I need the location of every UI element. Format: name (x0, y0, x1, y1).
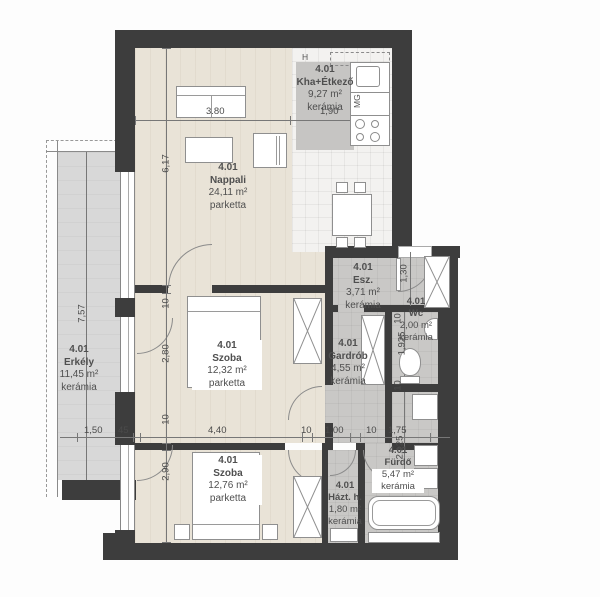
room-floor: kerámia (50, 382, 108, 395)
coffee-table (185, 137, 233, 163)
wall-hazt-top (356, 443, 365, 450)
tick (162, 48, 171, 49)
dim-wall-10: 10 (161, 284, 172, 324)
bed-pillow-line (188, 311, 260, 312)
dining-chair (354, 237, 366, 248)
fridge-label: H (302, 52, 308, 62)
room-number: 4.01 (318, 338, 378, 351)
dim-wall-10: 10 (366, 425, 377, 436)
dim-wc-height: 1,925 (397, 322, 408, 366)
room-number: 4.01 (194, 455, 262, 468)
window-nappali-balcony (120, 172, 135, 298)
room-label-szoba1: 4.01 Szoba 12,32 m² parketta (192, 340, 262, 390)
room-name: Kha+Étkező (290, 77, 360, 90)
room-area: 12,76 m² (194, 480, 262, 493)
dim-balcony-width: 1,50 (84, 425, 103, 436)
dim-balcony-height: 7,57 (77, 294, 88, 334)
bathtub-inner (372, 500, 436, 526)
dim-wall-10: 10 (161, 400, 172, 440)
dim-wall-45: 45 (118, 425, 129, 436)
room-floor: kerámia (318, 376, 378, 389)
tick (290, 116, 291, 125)
dim-furdo-height: 2,125 (395, 426, 406, 470)
stove-burner (356, 133, 364, 141)
room-label-szoba2: 4.01 Szoba 12,76 m² parketta (194, 455, 262, 505)
dining-chair (336, 182, 348, 193)
wall-left-1 (115, 30, 135, 172)
room-floor: parketta (194, 493, 262, 506)
room-name: Erkély (50, 357, 108, 370)
room-number: 4.01 (322, 480, 368, 492)
tv-line2 (276, 136, 277, 165)
room-number: 4.01 (290, 64, 360, 77)
room-floor: parketta (192, 378, 262, 391)
stove-burner (371, 120, 379, 128)
counter-divider2 (350, 115, 390, 116)
room-name: Esz. (333, 275, 393, 288)
dimline-bottom-chain (60, 437, 450, 438)
room-label-erkely: 4.01 Erkély 11,45 m² kerámia (50, 344, 108, 394)
tick (135, 116, 136, 125)
bed-pillow-line2 (193, 524, 259, 525)
room-floor: kerámia (333, 300, 393, 313)
room-area: 24,11 m² (195, 187, 261, 200)
nightstand (262, 524, 278, 540)
wardrobe-x (294, 477, 321, 537)
room-name: Szoba (194, 468, 262, 481)
room-name: Gardrób (318, 351, 378, 364)
bathtub (368, 496, 440, 530)
floorplan: H MG 4.01 Nappali 24,11 m² parke (0, 0, 600, 597)
wall-left-2 (115, 298, 135, 317)
dim-nappali-height: 6,17 (161, 144, 172, 184)
dim-wall-10: 10 (301, 425, 312, 436)
room-label-hazt: 4.01 Házt. h. 1,80 m² kerámia (322, 480, 368, 528)
furdo-shelf (368, 532, 440, 543)
room-area: 3,71 m² (333, 287, 393, 300)
dining-table (332, 194, 372, 236)
room-name: Házt. h. (322, 492, 368, 504)
window-szoba2-balcony (120, 445, 135, 530)
balcony-railing-left (46, 140, 58, 497)
dining-chair (336, 237, 348, 248)
wall-kitchen-right (392, 30, 412, 246)
dim-hazt-width: 1,00 (325, 425, 344, 436)
room-area: 11,45 m² (50, 369, 108, 382)
wall-gardrob-wc (385, 305, 392, 443)
room-floor: parketta (195, 200, 261, 213)
tick (77, 433, 78, 442)
room-name: Szoba (192, 353, 262, 366)
room-floor: kerámia (322, 516, 368, 528)
room-area: 9,27 m² (290, 89, 360, 102)
dim-szoba1-height: 2,80 (161, 334, 172, 374)
tick (430, 433, 431, 442)
nightstand (174, 524, 190, 540)
tick (162, 542, 171, 543)
room-number: 4.01 (195, 162, 261, 175)
room-area: 4,55 m² (318, 363, 378, 376)
room-number: 4.01 (333, 262, 393, 275)
room-label-gardrob: 4.01 Gardrób 4,55 m² kerámia (318, 338, 378, 388)
room-name: Nappali (195, 175, 261, 188)
wall-bottom (115, 543, 458, 560)
wall-top (115, 30, 412, 48)
stove-burner (370, 132, 380, 142)
wardrobe-szoba2 (293, 476, 322, 538)
dim-szoba2-height: 2,90 (161, 452, 172, 492)
room-label-nappali: 4.01 Nappali 24,11 m² parketta (195, 162, 261, 212)
room-area: 5,47 m² (372, 469, 424, 481)
dim-wall-10: 10 (393, 374, 404, 398)
tick (360, 433, 361, 442)
wc-shaft-unit (412, 394, 438, 420)
tick (140, 433, 141, 442)
dining-chair (354, 182, 366, 193)
dim-esz-height: 1,30 (399, 254, 410, 294)
room-number: 4.01 (192, 340, 262, 353)
tick (350, 433, 351, 442)
wall-nappali-szoba1-b (212, 285, 325, 293)
stove-burner (355, 119, 365, 129)
wall-szoba1-szoba2-b (322, 443, 333, 450)
tick (162, 443, 171, 444)
wall-left-4 (115, 530, 135, 560)
room-area: 1,80 m² (322, 504, 368, 516)
tick (312, 433, 313, 442)
balcony-railing-top (46, 140, 122, 152)
wardrobe-x (294, 299, 321, 363)
tv-line (279, 136, 280, 165)
dim-szoba-width: 4,40 (208, 425, 227, 436)
dimline-top (135, 120, 365, 121)
tick (133, 433, 134, 442)
hazt-washer (330, 528, 358, 542)
wall-bottom-step (103, 533, 115, 560)
dim-nappali-width: 3.80 (206, 106, 225, 117)
window-szoba1-balcony (120, 317, 135, 392)
room-number: 4.01 (50, 344, 108, 357)
dim-kitchen-width: 1,90 (320, 106, 339, 117)
room-label-esz: 4.01 Esz. 3,71 m² kerámia (333, 262, 393, 312)
room-floor: kerámia (372, 481, 424, 493)
room-area: 12,32 m² (192, 365, 262, 378)
